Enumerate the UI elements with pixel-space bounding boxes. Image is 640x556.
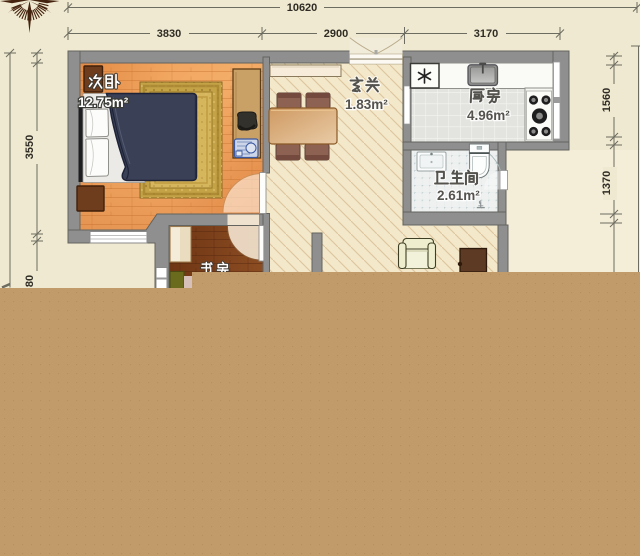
svg-text:3170: 3170 (474, 28, 498, 40)
svg-text:3830: 3830 (157, 28, 181, 40)
svg-text:1560: 1560 (601, 88, 613, 112)
svg-text:2900: 2900 (324, 28, 348, 40)
svg-text:80: 80 (24, 275, 36, 287)
svg-text:4.96m²: 4.96m² (467, 108, 510, 123)
svg-text:1370: 1370 (601, 171, 613, 195)
svg-text:1.83m²: 1.83m² (345, 97, 388, 112)
svg-text:3550: 3550 (24, 135, 36, 159)
svg-text:2.61m²: 2.61m² (437, 188, 480, 203)
svg-text:10620: 10620 (287, 2, 318, 14)
svg-text:12.75m²: 12.75m² (78, 95, 129, 110)
